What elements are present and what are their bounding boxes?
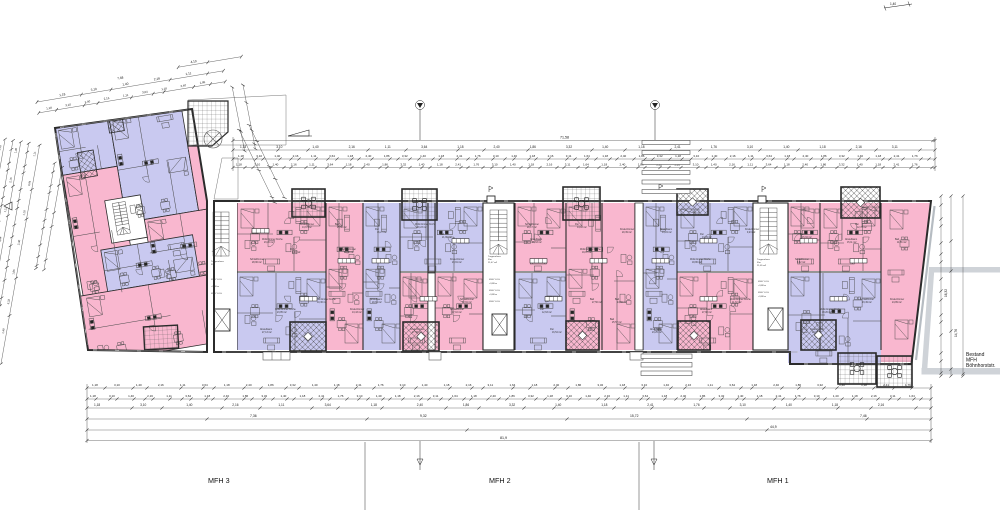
svg-text:3,10: 3,10 [357,394,363,398]
svg-text:2,41: 2,41 [647,403,653,407]
svg-text:1,40: 1,40 [555,403,561,407]
svg-text:05/07 LOG: 05/07 LOG [489,301,500,303]
svg-text:3,32: 3,32 [597,383,603,387]
svg-text:3,64: 3,64 [642,394,648,398]
svg-text:1,86: 1,86 [463,403,469,407]
svg-text:Schlafzimmer: Schlafzimmer [460,298,474,301]
svg-text:2,40: 2,40 [773,383,779,387]
svg-text:Bad: Bad [615,299,620,301]
svg-text:MFH 3: MFH 3 [208,476,230,485]
svg-text:1,11: 1,11 [623,394,629,398]
svg-text:1,86: 1,86 [268,383,274,387]
svg-text:MFH 2: MFH 2 [489,476,511,485]
svg-text:23,49 m2: 23,49 m2 [862,302,872,304]
svg-text:1,40: 1,40 [186,403,192,407]
svg-text:1,76: 1,76 [711,145,717,149]
svg-text:1,18: 1,18 [240,145,246,149]
svg-text:3,10: 3,10 [693,163,699,167]
svg-text:3,10: 3,10 [256,154,262,158]
svg-text:Schlafzimmer: Schlafzimmer [250,258,264,261]
svg-text:13,24 m2: 13,24 m2 [662,232,672,234]
svg-text:1,40: 1,40 [711,163,717,167]
svg-text:Wohnzimmer Küche: Wohnzimmer Küche [415,223,436,226]
svg-text:11,56 m2: 11,56 m2 [897,242,907,244]
svg-text:1,64: 1,64 [583,163,589,167]
svg-text:2,16: 2,16 [685,383,691,387]
svg-text:1,18: 1,18 [852,394,858,398]
svg-text:1,64: 1,64 [909,394,915,398]
svg-text:Abstellraum: Abstellraum [845,238,857,241]
svg-text:3,10: 3,10 [740,403,746,407]
svg-text:Wohnzimmer Küche: Wohnzimmer Küche [730,298,751,301]
svg-text:2,40: 2,40 [366,154,372,158]
svg-text:15,72: 15,72 [630,414,639,418]
svg-text:1,11: 1,11 [309,163,315,167]
svg-text:1,40: 1,40 [857,163,863,167]
svg-text:3,32: 3,32 [839,154,845,158]
svg-text:3,11: 3,11 [433,394,439,398]
svg-text:16,54 m2: 16,54 m2 [552,332,562,334]
svg-text:1,86: 1,86 [575,383,581,387]
svg-text:1,18: 1,18 [547,394,553,398]
svg-text:3,10: 3,10 [140,403,146,407]
svg-text:1,18: 1,18 [528,163,534,167]
svg-text:44,9: 44,9 [770,425,777,429]
svg-text:Böhnhorststr.: Böhnhorststr. [966,363,995,369]
svg-text:3,32: 3,32 [402,154,408,158]
svg-text:1,18: 1,18 [300,394,306,398]
svg-text:20,80 m2: 20,80 m2 [344,252,354,254]
svg-text:12,91 m2: 12,91 m2 [462,302,472,304]
svg-text:1,40: 1,40 [833,394,839,398]
svg-text:1,11: 1,11 [166,394,172,398]
svg-text:3,64: 3,64 [202,383,208,387]
svg-text:Flur: Flur [540,308,544,311]
svg-text:1,18: 1,18 [784,163,790,167]
svg-text:Flur: Flur [550,328,554,331]
svg-text:16,63 m2: 16,63 m2 [532,242,542,244]
svg-text:+3,88 m: +3,88 m [758,285,766,287]
svg-text:Bad: Bad [590,299,595,301]
svg-text:1,40: 1,40 [857,154,863,158]
svg-text:2,40: 2,40 [620,154,626,158]
svg-text:1,18: 1,18 [346,163,352,167]
svg-text:2,16: 2,16 [729,163,735,167]
svg-text:20,17 m2: 20,17 m2 [527,227,537,229]
svg-text:Bad: Bad [800,234,805,236]
svg-text:2,40: 2,40 [802,163,808,167]
svg-text:27,56 m2: 27,56 m2 [592,302,602,304]
svg-text:1,76: 1,76 [905,383,911,387]
svg-text:Schlafzimmer: Schlafzimmer [342,248,356,251]
svg-text:1,18: 1,18 [532,383,538,387]
svg-text:3,32: 3,32 [566,145,572,149]
svg-text:2,16: 2,16 [548,154,554,158]
svg-text:14,18 m2: 14,18 m2 [577,227,587,229]
svg-text:2,41: 2,41 [356,383,362,387]
svg-text:25,57 m2: 25,57 m2 [612,322,622,324]
svg-text:1,18: 1,18 [875,154,881,158]
svg-text:Wohnzimmer Küche: Wohnzimmer Küche [262,238,283,241]
svg-text:Flur: Flur [290,248,294,251]
svg-text:23,91 m2: 23,91 m2 [452,262,462,264]
svg-text:1,18: 1,18 [94,403,100,407]
svg-text:2,41: 2,41 [319,394,325,398]
svg-text:Kinderzimmer: Kinderzimmer [745,228,759,231]
svg-text:3,32: 3,32 [817,383,823,387]
svg-text:1,11: 1,11 [748,154,754,158]
svg-text:24,89 m2: 24,89 m2 [892,302,902,304]
svg-text:1,40: 1,40 [281,394,287,398]
svg-text:1,40: 1,40 [274,154,280,158]
svg-text:3,10: 3,10 [641,383,647,387]
svg-text:1,76: 1,76 [473,163,479,167]
svg-text:05/07 LOG: 05/07 LOG [758,281,769,283]
svg-text:3,64: 3,64 [329,154,335,158]
svg-text:+3,88 m: +3,88 m [489,294,497,296]
svg-text:05/07 LOG: 05/07 LOG [211,293,222,295]
svg-text:1,76: 1,76 [795,394,801,398]
svg-text:11,72 m2: 11,72 m2 [732,302,742,304]
svg-text:2,41: 2,41 [894,163,900,167]
svg-text:14,66 m2: 14,66 m2 [617,302,627,304]
svg-text:1,40: 1,40 [312,383,318,387]
svg-text:3,64: 3,64 [327,163,333,167]
svg-text:2,40: 2,40 [490,394,496,398]
svg-text:1,18: 1,18 [861,383,867,387]
svg-text:3,11: 3,11 [566,154,572,158]
svg-text:8,82 m2: 8,82 m2 [797,262,806,264]
svg-text:2,16: 2,16 [871,394,877,398]
svg-text:1,11: 1,11 [747,163,753,167]
svg-text:81,9: 81,9 [500,436,507,440]
svg-text:3,11: 3,11 [565,163,571,167]
svg-text:1,18: 1,18 [457,145,463,149]
svg-text:1,18: 1,18 [601,403,607,407]
svg-text:2,41: 2,41 [675,145,681,149]
svg-text:21,05 m2: 21,05 m2 [757,265,767,267]
svg-text:Kinderzimmer: Kinderzimmer [620,228,634,231]
svg-text:1,11: 1,11 [707,383,713,387]
svg-text:3,32: 3,32 [261,394,267,398]
svg-text:1,76: 1,76 [912,154,918,158]
svg-text:3,10: 3,10 [114,383,120,387]
svg-text:1,86: 1,86 [509,394,515,398]
svg-text:1,86: 1,86 [795,383,801,387]
svg-text:2,40: 2,40 [417,403,423,407]
svg-text:2,40: 2,40 [553,383,559,387]
svg-text:3,32: 3,32 [509,403,515,407]
svg-text:3,11: 3,11 [488,383,494,387]
svg-text:16,27 m2: 16,27 m2 [377,232,387,234]
svg-text:2,16: 2,16 [291,163,297,167]
svg-text:3,10: 3,10 [109,394,115,398]
svg-text:Abstellraum: Abstellraum [660,228,672,231]
svg-text:20,61 m2: 20,61 m2 [372,302,382,304]
svg-text:2,40: 2,40 [364,163,370,167]
svg-text:05/07 LOG: 05/07 LOG [758,292,769,294]
svg-text:1,40: 1,40 [510,163,516,167]
svg-text:7,46: 7,46 [860,414,867,418]
svg-text:1,18: 1,18 [819,145,825,149]
svg-text:1,18: 1,18 [438,154,444,158]
svg-text:16,32: 16,32 [944,289,948,297]
svg-text:Abstellraum: Abstellraum [260,328,272,331]
svg-text:3,10: 3,10 [276,145,282,149]
svg-text:2,16: 2,16 [547,163,553,167]
svg-text:10,36 m2: 10,36 m2 [317,302,327,304]
svg-text:1,86: 1,86 [242,394,248,398]
svg-text:1,76: 1,76 [912,163,918,167]
svg-text:1,40: 1,40 [786,403,792,407]
svg-text:Kinderzimmer: Kinderzimmer [890,298,904,301]
svg-text:Bad: Bad [895,239,900,241]
svg-text:1,86: 1,86 [384,154,390,158]
svg-text:9,68 m2: 9,68 m2 [292,252,301,254]
svg-text:3,10: 3,10 [693,154,699,158]
svg-text:1,40: 1,40 [712,154,718,158]
svg-text:Abstellraum: Abstellraum [650,328,662,331]
svg-text:1,11: 1,11 [385,145,391,149]
svg-text:1,40: 1,40 [602,145,608,149]
svg-text:2,16: 2,16 [293,154,299,158]
svg-text:Flur: Flur [855,223,859,226]
svg-text:3,10: 3,10 [493,154,499,158]
svg-text:1,86: 1,86 [530,145,536,149]
svg-text:1,18: 1,18 [529,154,535,158]
svg-text:1,18: 1,18 [444,383,450,387]
svg-text:1,18: 1,18 [601,163,607,167]
svg-text:1,18: 1,18 [471,394,477,398]
svg-text:Wohnzimmer Küche: Wohnzimmer Küche [315,298,336,301]
svg-text:05/07 LOG: 05/07 LOG [489,279,500,281]
svg-text:1,18: 1,18 [334,383,340,387]
svg-text:1,11: 1,11 [180,383,186,387]
svg-text:2,16: 2,16 [856,145,862,149]
svg-text:3,64: 3,64 [325,403,331,407]
svg-text:1,18: 1,18 [204,394,210,398]
svg-text:1,40: 1,40 [136,383,142,387]
svg-text:3,10: 3,10 [492,163,498,167]
svg-text:12,63 m2: 12,63 m2 [542,312,552,314]
svg-text:1,18: 1,18 [638,145,644,149]
svg-text:Abstellraum: Abstellraum [370,298,382,301]
svg-text:3,64: 3,64 [766,154,772,158]
svg-text:3,32: 3,32 [290,383,296,387]
svg-text:2,40: 2,40 [680,394,686,398]
svg-text:1,86: 1,86 [820,163,826,167]
svg-text:3,64: 3,64 [729,383,735,387]
svg-text:1,40: 1,40 [128,394,134,398]
svg-text:Kinderzimmer: Kinderzimmer [300,223,314,226]
svg-text:1,76: 1,76 [338,394,344,398]
svg-text:Bad: Bad [335,224,340,226]
svg-text:1,40: 1,40 [376,394,382,398]
svg-text:2,40: 2,40 [494,145,500,149]
svg-text:1,40: 1,40 [422,383,428,387]
svg-text:3,32: 3,32 [719,394,725,398]
svg-text:1,40: 1,40 [419,163,425,167]
svg-text:3,11: 3,11 [892,145,898,149]
svg-text:1,76: 1,76 [475,154,481,158]
svg-text:Kinderzimmer: Kinderzimmer [350,308,364,311]
svg-text:25,60 m2: 25,60 m2 [337,227,347,229]
svg-text:Abstellraum: Abstellraum [530,238,542,241]
svg-text:Abstellraum: Abstellraum [700,308,712,311]
svg-text:18,26 m2: 18,26 m2 [822,312,832,314]
svg-text:+3,88 m: +3,88 m [758,296,766,298]
svg-text:3,64: 3,64 [421,145,427,149]
svg-text:27,13 m2: 27,13 m2 [262,332,272,334]
svg-text:3,10: 3,10 [747,145,753,149]
svg-text:05/07 LOG: 05/07 LOG [489,290,500,292]
svg-text:3,10: 3,10 [814,394,820,398]
svg-text:1,18: 1,18 [751,383,757,387]
svg-text:2,40: 2,40 [246,383,252,387]
svg-text:3,32: 3,32 [400,163,406,167]
svg-text:2,16: 2,16 [878,403,884,407]
svg-text:27,82 m2: 27,82 m2 [702,312,712,314]
svg-text:1,86: 1,86 [821,154,827,158]
svg-text:1,64: 1,64 [452,394,458,398]
svg-text:1,18: 1,18 [224,383,230,387]
svg-text:1,40: 1,40 [420,154,426,158]
svg-text:3,64: 3,64 [185,394,191,398]
svg-text:Wohnzimmer Küche: Wohnzimmer Küche [275,308,296,311]
svg-text:2,41: 2,41 [894,154,900,158]
svg-text:2,16: 2,16 [730,154,736,158]
svg-text:+3,88 m: +3,88 m [211,286,219,288]
svg-text:1,86: 1,86 [382,163,388,167]
svg-text:Flur: Flur [757,261,761,264]
svg-text:2,16: 2,16 [147,394,153,398]
svg-text:1,64: 1,64 [510,383,516,387]
svg-text:2,41: 2,41 [455,163,461,167]
svg-text:Treppenhaus: Treppenhaus [757,258,771,261]
svg-text:Flur: Flur [700,233,704,236]
svg-text:Wohnzimmer Küche: Wohnzimmer Küche [690,258,711,261]
svg-text:21,80 m2: 21,80 m2 [442,237,452,239]
svg-text:1,18: 1,18 [395,394,401,398]
svg-text:1,18: 1,18 [661,394,667,398]
svg-text:3,32: 3,32 [839,163,845,167]
svg-text:13,43 m2: 13,43 m2 [352,312,362,314]
svg-text:1,40: 1,40 [312,145,318,149]
svg-text:1,18: 1,18 [832,403,838,407]
svg-text:7,36: 7,36 [250,414,257,418]
svg-text:05/07 LOG: 05/07 LOG [211,279,222,281]
svg-text:1,11: 1,11 [311,154,317,158]
svg-text:1,18: 1,18 [602,154,608,158]
svg-text:1,86: 1,86 [700,394,706,398]
svg-text:1,18: 1,18 [90,394,96,398]
svg-text:3,10: 3,10 [400,383,406,387]
svg-text:Wohnzimmer Küche: Wohnzimmer Küche [820,308,841,311]
svg-text:1,18: 1,18 [437,163,443,167]
svg-text:18,86 m2: 18,86 m2 [692,262,702,264]
svg-text:12,78 m2: 12,78 m2 [857,227,867,229]
svg-text:3,32: 3,32 [528,394,534,398]
svg-text:9,32: 9,32 [420,414,427,418]
svg-text:19,97 m2: 19,97 m2 [582,252,592,254]
svg-text:9,23 m2: 9,23 m2 [747,232,756,234]
svg-text:2,41: 2,41 [883,383,889,387]
svg-text:2,16: 2,16 [414,394,420,398]
svg-text:1,11: 1,11 [278,403,284,407]
svg-text:2,41: 2,41 [776,394,782,398]
svg-text:Schlafzimmer: Schlafzimmer [450,308,464,311]
svg-text:13,67 m2: 13,67 m2 [302,227,312,229]
svg-text:Schlafzimmer: Schlafzimmer [525,223,539,226]
svg-text:MFH 1: MFH 1 [767,476,789,485]
svg-text:23,20 m2: 23,20 m2 [264,242,274,244]
svg-text:2,16: 2,16 [466,383,472,387]
svg-text:2,16: 2,16 [604,394,610,398]
svg-text:21,47 m2: 21,47 m2 [488,262,498,264]
svg-text:1,18: 1,18 [619,383,625,387]
svg-text:1,18: 1,18 [236,163,242,167]
svg-text:Kinderzimmer: Kinderzimmer [450,258,464,261]
svg-text:2,16: 2,16 [349,145,355,149]
svg-text:1,40: 1,40 [839,383,845,387]
svg-text:1,40: 1,40 [890,2,896,6]
svg-text:Bad: Bad [610,319,615,321]
svg-text:1,18: 1,18 [757,394,763,398]
svg-text:1,64: 1,64 [584,154,590,158]
svg-text:Flur: Flur [375,228,379,231]
svg-text:1,76: 1,76 [378,383,384,387]
svg-text:1,40: 1,40 [783,145,789,149]
svg-text:23,25 m2: 23,25 m2 [652,332,662,334]
svg-text:17,10 m2: 17,10 m2 [452,312,462,314]
svg-text:1,18: 1,18 [875,163,881,167]
svg-text:3,10: 3,10 [566,394,572,398]
svg-text:1,18: 1,18 [92,383,98,387]
svg-text:Bad: Bad [440,234,445,236]
svg-text:1,40: 1,40 [585,394,591,398]
svg-text:28,96 m2: 28,96 m2 [252,262,262,264]
svg-text:14,76: 14,76 [954,329,958,337]
svg-text:1,40: 1,40 [511,154,517,158]
svg-text:1,40: 1,40 [273,163,279,167]
svg-text:1,18: 1,18 [371,403,377,407]
svg-text:Schlafzimmer: Schlafzimmer [860,298,874,301]
svg-text:Flur: Flur [575,223,579,226]
svg-text:2,40: 2,40 [803,154,809,158]
svg-text:1,40: 1,40 [663,383,669,387]
svg-text:1,18: 1,18 [238,154,244,158]
svg-text:2,40: 2,40 [620,163,626,167]
svg-text:+3,88 m: +3,88 m [489,283,497,285]
svg-text:1,18: 1,18 [784,154,790,158]
svg-text:1,76: 1,76 [693,403,699,407]
svg-text:3,11: 3,11 [890,394,896,398]
svg-text:20,23 m2: 20,23 m2 [417,227,427,229]
svg-text:71,58: 71,58 [560,136,569,140]
svg-text:Treppenhaus: Treppenhaus [488,255,502,258]
svg-text:20,39 m2: 20,39 m2 [622,232,632,234]
svg-text:15,11 m2: 15,11 m2 [847,242,857,244]
svg-text:2,41: 2,41 [457,154,463,158]
svg-text:1,18: 1,18 [347,154,353,158]
svg-text:2,16: 2,16 [158,383,164,387]
svg-text:Flur: Flur [488,258,492,261]
svg-text:23,85 m2: 23,85 m2 [277,312,287,314]
svg-text:1,40: 1,40 [738,394,744,398]
svg-text:Schlafzimmer: Schlafzimmer [795,258,809,261]
svg-text:2,40: 2,40 [223,394,229,398]
svg-text:3,64: 3,64 [766,163,772,167]
